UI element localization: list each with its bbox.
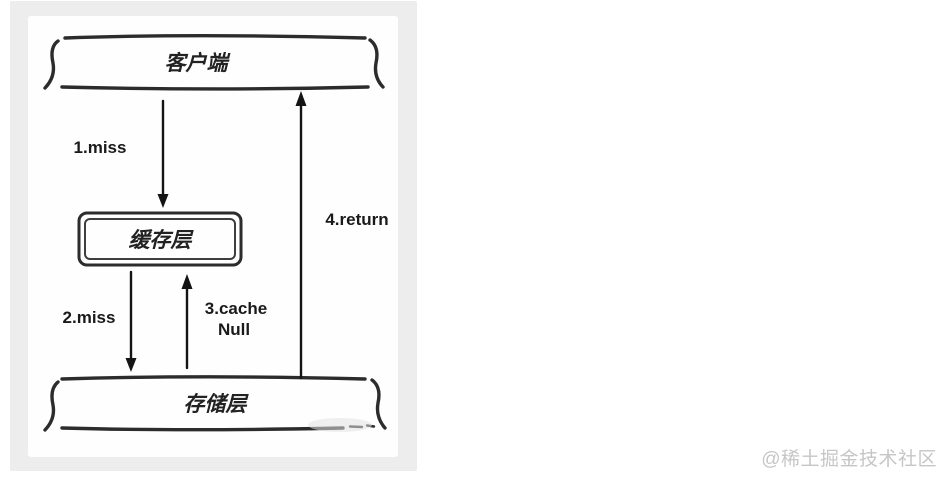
client-label: 客户端 <box>165 50 232 75</box>
edge-cache-null-label-line1: 3.cache <box>205 299 267 318</box>
cache-label: 缓存层 <box>129 227 195 252</box>
diagram-svg: 客户端 缓存层 存储层 <box>10 1 417 471</box>
storage-label: 存储层 <box>184 391 250 416</box>
cache-penetration-diagram: 客户端 缓存层 存储层 <box>10 1 417 471</box>
screenshot-canvas: 客户端 缓存层 存储层 <box>0 0 952 482</box>
client-box-bottom-line <box>62 87 368 89</box>
erased-smudge <box>308 418 372 432</box>
storage-box-bottom-line <box>62 428 343 430</box>
edge-miss-1-label: 1.miss <box>74 138 127 157</box>
juejin-watermark: @稀土掘金技术社区 <box>761 444 937 471</box>
edge-miss-2-label: 2.miss <box>63 308 116 327</box>
edge-return-4-label: 4.return <box>325 210 388 229</box>
edge-cache-null-label-line2: Null <box>218 320 250 339</box>
